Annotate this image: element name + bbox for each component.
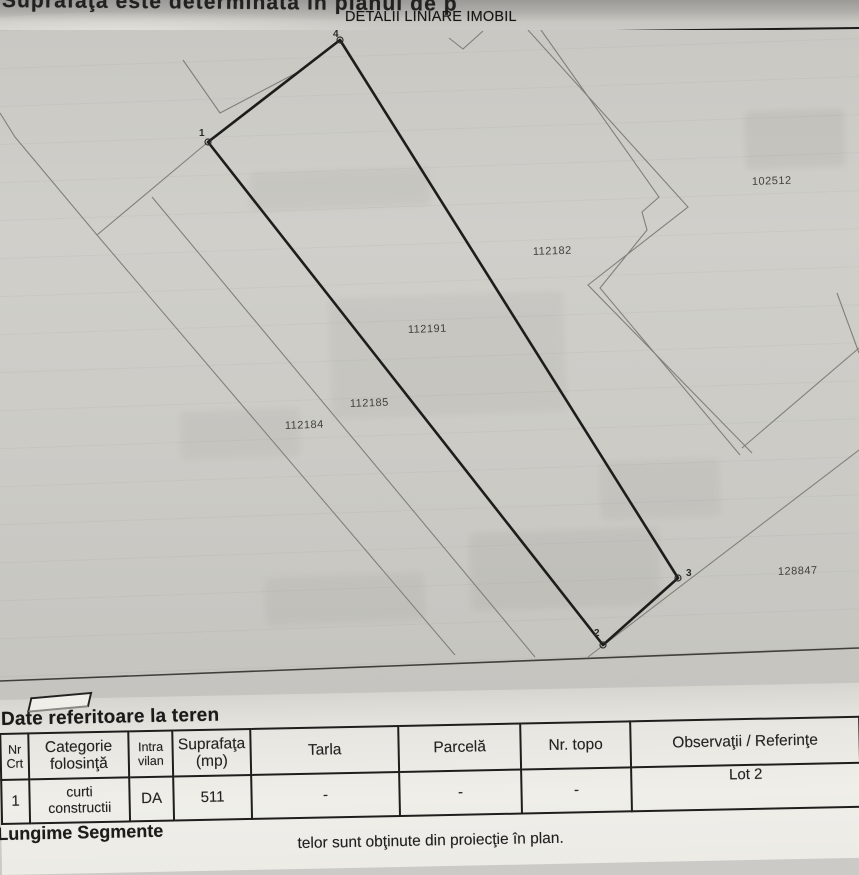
parcel-label: 128847 bbox=[778, 565, 818, 578]
parcel-label: 112182 bbox=[533, 245, 572, 258]
cell-nr-topo: - bbox=[521, 767, 632, 813]
cell-intravilan: DA bbox=[129, 777, 174, 822]
detalii-liniare-title: DETALII LINIARE IMOBIL bbox=[345, 9, 517, 25]
cell-nr-crt: 1 bbox=[1, 779, 30, 824]
plan-drawing: 4 1 2 3 102512 112182 112191 112185 1121… bbox=[0, 30, 859, 700]
boundary-notch-top bbox=[449, 31, 483, 49]
cell-observatii: Lot 2 bbox=[631, 763, 859, 812]
cell-tarla: - bbox=[251, 772, 400, 819]
boundary-line-left-top bbox=[0, 113, 97, 235]
cell-categorie: curti constructii bbox=[29, 777, 130, 823]
section-title: Date referitoare la teren bbox=[1, 705, 220, 731]
boundary-line-112184-left bbox=[97, 235, 455, 655]
parcel-label: 112185 bbox=[350, 397, 389, 410]
col-header-parcela: Parcelă bbox=[398, 724, 521, 772]
vertex-label: 4 bbox=[333, 30, 339, 40]
col-header-nr-topo: Nr. topo bbox=[520, 721, 631, 769]
boundary-notch-upper-left bbox=[183, 60, 302, 113]
top-strip: Suprafaţa este determinată în planul de … bbox=[0, 0, 859, 30]
col-header-tarla: Tarla bbox=[250, 726, 399, 775]
cadastral-plan: 4 1 2 3 102512 112182 112191 112185 1121… bbox=[0, 30, 859, 700]
boundary-line-112184-112185 bbox=[152, 197, 535, 657]
vertex-label: 2 bbox=[594, 628, 600, 639]
col-header-observatii: Observaţii / Referinţe bbox=[630, 717, 859, 768]
boundary-zigzag-outer bbox=[528, 30, 752, 453]
vertex-label: 1 bbox=[199, 128, 205, 139]
col-header-nr-crt: Nr Crt bbox=[0, 733, 29, 780]
boundary-zigzag-inner bbox=[541, 30, 740, 455]
parcel-label: 112191 bbox=[408, 323, 447, 336]
land-data-section: Date referitoare la teren Nr Crt Categor… bbox=[0, 682, 859, 875]
lungime-segmente-title: Lungime Segmente bbox=[0, 821, 164, 845]
parcel-label: 112184 bbox=[285, 419, 324, 432]
parcel-label: 102512 bbox=[752, 175, 792, 188]
col-header-categorie: Categorie folosinţă bbox=[28, 731, 129, 779]
boundary-segment-right-edge bbox=[837, 293, 859, 353]
parcel-112191-outline bbox=[208, 40, 678, 645]
cell-parcela: - bbox=[399, 770, 522, 816]
vertex-label: 3 bbox=[686, 568, 692, 579]
col-header-intravilan: Intra vilan bbox=[128, 731, 173, 778]
teren-table: Nr Crt Categorie folosinţă Intra vilan S… bbox=[0, 716, 859, 825]
boundary-line-128847 bbox=[588, 450, 859, 657]
cell-suprafata: 511 bbox=[173, 775, 252, 821]
scanned-cadastral-document: Suprafaţa este determinată în planul de … bbox=[0, 0, 859, 850]
boundary-line-to-vertex1 bbox=[97, 142, 208, 235]
col-header-suprafata: Suprafaţa (mp) bbox=[172, 729, 251, 777]
boundary-line-right bbox=[742, 348, 859, 448]
road-line-bottom bbox=[0, 648, 859, 681]
